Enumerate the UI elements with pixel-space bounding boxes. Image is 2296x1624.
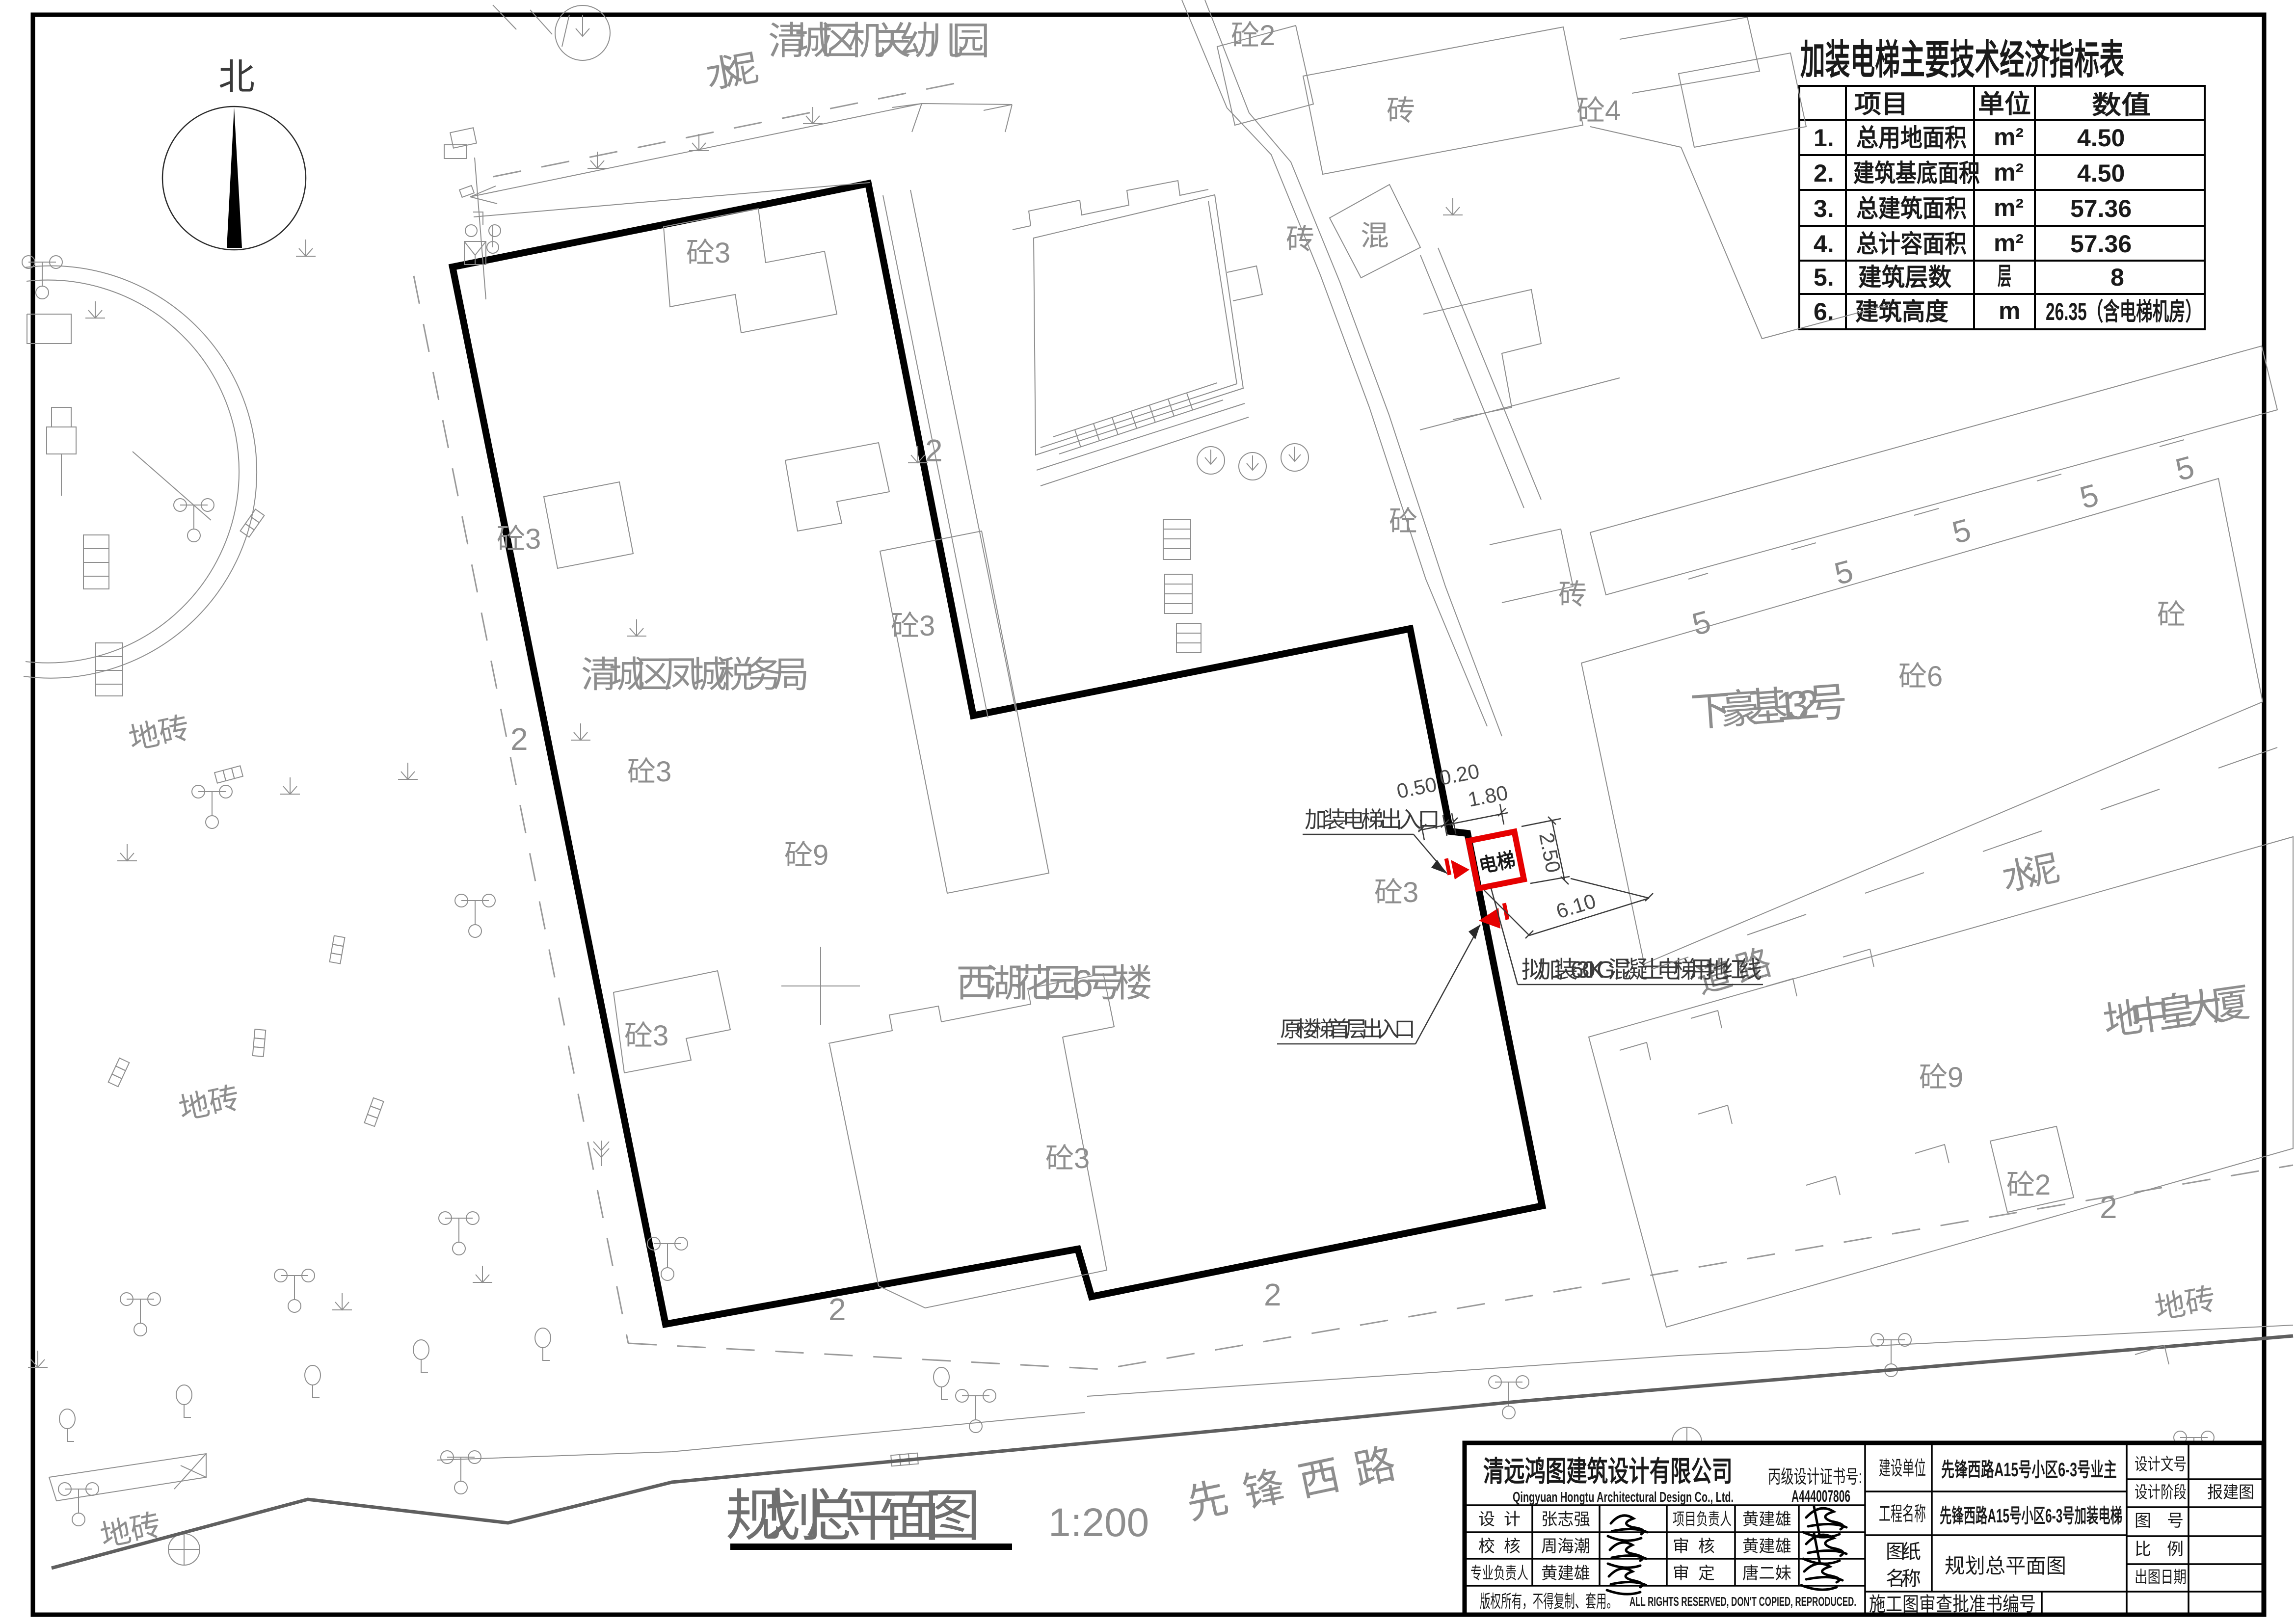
svg-text:规划总平面图: 规划总平面图 — [1945, 1554, 2066, 1577]
svg-text:北: 北 — [218, 56, 255, 97]
svg-text:ALL RIGHTS RESERVED, DON'T COP: ALL RIGHTS RESERVED, DON'T COPIED, REPRO… — [1629, 1594, 1856, 1609]
svg-text:砖: 砖 — [1387, 95, 1415, 127]
svg-text:砖: 砖 — [1286, 223, 1314, 255]
svg-text:周海潮: 周海潮 — [1541, 1537, 1590, 1556]
svg-text:57.36: 57.36 — [2070, 195, 2132, 222]
svg-text:砼6: 砼6 — [1898, 661, 1943, 692]
svg-text:报建图: 报建图 — [2207, 1483, 2254, 1502]
svg-text:清城区机关幼儿园: 清城区机关幼儿园 — [768, 19, 990, 62]
svg-text:砼2: 砼2 — [2006, 1169, 2051, 1201]
svg-text:砼: 砼 — [1389, 506, 1417, 537]
svg-text:设 计: 设 计 — [1478, 1510, 1521, 1529]
svg-text:砼4: 砼4 — [1576, 95, 1621, 127]
svg-text:砼: 砼 — [2157, 599, 2186, 631]
svg-text:加装电梯出入口: 加装电梯出入口 — [1305, 807, 1440, 832]
svg-text:总建筑面积: 总建筑面积 — [1856, 195, 1967, 222]
svg-text:数值: 数值 — [2092, 91, 2151, 120]
svg-text:图 纸: 图 纸 — [1886, 1541, 1921, 1563]
svg-text:原楼梯首层出入口: 原楼梯首层出入口 — [1280, 1017, 1415, 1041]
svg-text:丙级设计证书号:: 丙级设计证书号: — [1768, 1467, 1862, 1488]
svg-text:单位: 单位 — [1978, 90, 2031, 119]
svg-text:砼3: 砼3 — [1045, 1143, 1090, 1174]
svg-text:混: 混 — [1361, 220, 1389, 252]
svg-text:项目: 项目 — [1854, 90, 1908, 119]
svg-text:砼9: 砼9 — [784, 839, 828, 871]
svg-text:Qingyuan Hongtu Architectural: Qingyuan Hongtu Architectural Design Co.… — [1513, 1490, 1734, 1505]
svg-text:出图日期: 出图日期 — [2135, 1568, 2187, 1587]
svg-text:1:200: 1:200 — [1048, 1500, 1149, 1545]
svg-text:砼3: 砼3 — [497, 523, 541, 555]
svg-text:2: 2 — [510, 721, 528, 757]
svg-text:图 号: 图 号 — [2135, 1512, 2184, 1530]
svg-text:建筑高度: 建筑高度 — [1855, 298, 1949, 325]
svg-text:A444007806: A444007806 — [1791, 1487, 1850, 1506]
svg-text:设计文号: 设计文号 — [2135, 1455, 2187, 1474]
svg-text:西湖花园6 号楼: 西湖花园6 号楼 — [956, 961, 1152, 1005]
svg-text:总用地面积: 总用地面积 — [1856, 124, 1967, 152]
svg-text:校 核: 校 核 — [1478, 1537, 1521, 1556]
svg-text:专业负责人: 专业负责人 — [1470, 1564, 1528, 1583]
svg-text:3.: 3. — [1814, 195, 1834, 222]
svg-text:设计阶段: 设计阶段 — [2135, 1483, 2187, 1502]
svg-text:4.50: 4.50 — [2077, 124, 2125, 152]
svg-text:2.: 2. — [1814, 160, 1834, 187]
svg-text:建筑层数: 建筑层数 — [1858, 264, 1951, 291]
svg-text:26.35（含电梯机房）: 26.35（含电梯机房） — [2046, 298, 2202, 325]
svg-text:2: 2 — [1264, 1277, 1281, 1312]
svg-text:6.: 6. — [1814, 298, 1834, 325]
svg-text:建设单位: 建设单位 — [1879, 1458, 1926, 1479]
svg-text:拟加装630KG混凝土电梯用地红线: 拟加装630KG混凝土电梯用地红线 — [1522, 957, 1762, 983]
svg-text:m²: m² — [1994, 194, 2024, 221]
svg-text:砼3: 砼3 — [686, 237, 730, 269]
svg-text:8: 8 — [2110, 264, 2124, 291]
svg-text:规划总平面图: 规划总平面图 — [725, 1485, 981, 1547]
svg-text:m: m — [1999, 297, 2020, 324]
svg-text:审 定: 审 定 — [1673, 1564, 1715, 1583]
svg-text:砼3: 砼3 — [624, 1020, 668, 1052]
svg-text:5.: 5. — [1814, 264, 1834, 291]
svg-text:砼2: 砼2 — [1231, 20, 1275, 52]
svg-text:加装电梯主要技术经济指标表: 加装电梯主要技术经济指标表 — [1800, 38, 2124, 82]
svg-text:2: 2 — [2100, 1190, 2117, 1225]
svg-text:4.: 4. — [1814, 230, 1834, 258]
svg-text:名 称: 名 称 — [1886, 1568, 1921, 1590]
svg-text:4.50: 4.50 — [2077, 160, 2125, 187]
svg-text:比 例: 比 例 — [2135, 1540, 2184, 1559]
svg-text:张志强: 张志强 — [1541, 1510, 1590, 1529]
svg-text:唐二妹: 唐二妹 — [1742, 1564, 1791, 1583]
svg-text:砼3: 砼3 — [891, 610, 935, 642]
svg-text:砖: 砖 — [1558, 579, 1587, 611]
svg-text:工程名称: 工程名称 — [1879, 1503, 1926, 1525]
svg-text:1.: 1. — [1814, 124, 1834, 152]
svg-text:版权所有，不得复制、套用。: 版权所有，不得复制、套用。 — [1480, 1591, 1617, 1611]
svg-text:清远鸿图建筑设计有限公司: 清远鸿图建筑设计有限公司 — [1483, 1456, 1733, 1488]
svg-text:砼3: 砼3 — [627, 756, 671, 788]
svg-text:项目负责人: 项目负责人 — [1673, 1510, 1732, 1529]
svg-text:清城区凤城税务局: 清城区凤城税务局 — [581, 654, 809, 695]
svg-text:层: 层 — [1998, 263, 2011, 290]
svg-text:m²: m² — [1994, 159, 2024, 186]
svg-text:先锋西路A15号小区6-3号加装电梯: 先锋西路A15号小区6-3号加装电梯 — [1940, 1505, 2122, 1527]
svg-text:施工图审查批准书编号: 施工图审查批准书编号 — [1869, 1594, 2036, 1615]
svg-text:黄建雄: 黄建雄 — [1742, 1510, 1791, 1529]
svg-text:砼3: 砼3 — [1374, 877, 1418, 908]
svg-text:总计容面积: 总计容面积 — [1856, 230, 1967, 258]
svg-text:黄建雄: 黄建雄 — [1541, 1564, 1590, 1583]
svg-text:2: 2 — [828, 1292, 846, 1327]
svg-text:建筑基底面积: 建筑基底面积 — [1853, 160, 1980, 187]
svg-text:黄建雄: 黄建雄 — [1742, 1537, 1791, 1556]
svg-text:m²: m² — [1994, 229, 2024, 257]
svg-text:审 核: 审 核 — [1673, 1537, 1715, 1556]
svg-text:先锋西路A15号小区6-3号业主: 先锋西路A15号小区6-3号业主 — [1941, 1459, 2117, 1481]
svg-text:57.36: 57.36 — [2070, 230, 2132, 258]
svg-text:砼9: 砼9 — [1919, 1062, 1963, 1093]
svg-text:m²: m² — [1994, 123, 2024, 151]
